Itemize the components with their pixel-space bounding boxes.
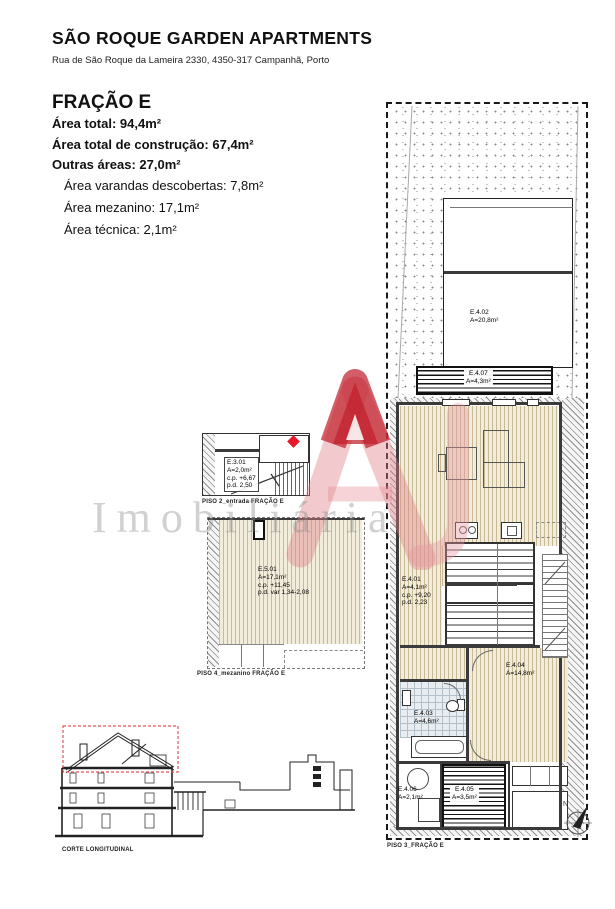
room-cp: c.p. +9,20 <box>402 592 431 600</box>
room-area: A=17,1m² <box>258 574 309 582</box>
bottom-band-wall <box>396 761 510 764</box>
room-label-e404: E.4.04 A=14,8m² <box>506 662 534 678</box>
room-pd: p.d. 2,23 <box>402 599 431 607</box>
balcony-storage-divider <box>508 761 510 828</box>
stair-lower-flight <box>445 602 535 647</box>
caption-entrada: PISO 2_entrada FRAÇÃO E <box>202 499 284 505</box>
north-arrow: N <box>558 794 598 842</box>
unit-wall-bottom <box>396 827 562 830</box>
mezz-skylight <box>253 520 265 540</box>
deck-divider-wall <box>444 271 572 274</box>
room-id: E.4.01 <box>402 576 431 584</box>
address-line: Rua de São Roque da Lameira 2330, 4350-3… <box>52 55 329 66</box>
entrance-wall-hatch <box>203 434 215 495</box>
room-area: A=4,1m² <box>402 584 431 592</box>
room-id: E.5.01 <box>258 566 309 574</box>
stair-landing-edge <box>445 583 517 586</box>
room-label-e401: E.4.01 A=4,1m² c.p. +9,20 p.d. 2,23 <box>402 576 431 607</box>
room-label-e407: E.4.07 A=4,3m² <box>464 370 493 386</box>
window-3 <box>527 399 539 406</box>
sink-bowl-1 <box>459 526 467 534</box>
chair-outline <box>438 454 446 472</box>
unit-wall-left <box>396 402 399 830</box>
tech-balcony-divider <box>440 764 442 828</box>
room-id: E.3.01 <box>227 459 256 467</box>
mezz-void-div2 <box>263 644 264 667</box>
unit-footprint <box>396 402 562 830</box>
room-cp: c.p. +11,45 <box>258 582 309 590</box>
stair-landing <box>445 585 535 602</box>
north-letter: N <box>563 801 568 808</box>
room-id: E.4.07 <box>466 370 491 378</box>
window-1 <box>442 399 470 406</box>
other-areas-line: Outras áreas: 27,0m² <box>52 157 181 172</box>
tech-equipment-box <box>418 798 440 822</box>
deck-inner-line <box>450 207 573 208</box>
room-id: E.4.06 <box>398 786 423 794</box>
room-area: A=3,5m² <box>452 794 477 802</box>
bathtub-inner <box>415 740 464 754</box>
room-area: A=4,6m² <box>414 718 439 726</box>
sink-bowl-2 <box>468 526 476 534</box>
room-label-e402: E.4.02 A=20,8m² <box>470 309 498 325</box>
storage-divider-2 <box>549 766 550 786</box>
room-area: A=14,8m² <box>506 670 534 678</box>
room-cp: c.p. +6,67 <box>227 475 256 483</box>
mezzanine-area-line: Área mezanino: 17,1m² <box>64 200 199 215</box>
room-pd: p.d. 2,50 <box>227 482 256 490</box>
room-label-e406: E.4.06 A=2,1m² <box>398 786 423 802</box>
room-area: A=2,1m² <box>398 794 423 802</box>
room-area: A=2,0m² <box>227 467 256 475</box>
stair-upper-flight <box>445 542 535 585</box>
room-area: A=4,3m² <box>466 378 491 386</box>
room-label-e405: E.4.05 A=3,5m² <box>450 786 479 802</box>
table-outline <box>446 447 477 480</box>
area-total-line: Área total: 94,4m² <box>52 116 161 131</box>
room-id: E.4.03 <box>414 710 439 718</box>
caption-mezanino: PISO 4_mezanino FRAÇÃO E <box>197 671 285 677</box>
living-room-floor <box>400 406 558 546</box>
balconies-area-line: Área varandas descobertas: 7,8m² <box>64 178 263 193</box>
mezz-wall-top <box>208 518 364 520</box>
room-area: A=20,8m² <box>470 317 498 325</box>
caption-piso3: PISO 3_FRAÇÃO E <box>387 843 444 849</box>
mezz-wall-hatch <box>208 518 219 667</box>
room-id: E.4.02 <box>470 309 498 317</box>
stove-burner <box>507 526 517 536</box>
washbasin <box>402 690 411 706</box>
window-2 <box>492 399 516 406</box>
corridor-wall <box>400 645 540 648</box>
mezz-step-notch <box>284 650 363 668</box>
corridor-floor <box>400 648 468 682</box>
room-id: E.4.05 <box>452 786 477 794</box>
property-sheet-page: SÃO ROQUE GARDEN APARTMENTS Rua de São R… <box>0 0 615 909</box>
sofa-chaise-outline <box>483 462 525 488</box>
technical-area-line: Área técnica: 2,1m² <box>64 222 177 237</box>
area-construction-line: Área total de construção: 67,4m² <box>52 137 254 152</box>
room-label-e501: E.5.01 A=17,1m² c.p. +11,45 p.d. var 1,3… <box>258 566 309 597</box>
caption-corte: CORTE LONGITUDINAL <box>62 847 134 853</box>
storage-divider-1 <box>530 766 531 786</box>
page-title: SÃO ROQUE GARDEN APARTMENTS <box>52 28 372 49</box>
mezz-void-div1 <box>241 644 242 667</box>
mezz-void-area <box>219 644 284 668</box>
bedroom-wall-left <box>466 648 469 762</box>
longitudinal-section <box>50 722 365 852</box>
main-floor-plan: E.4.07 A=4,3m² <box>386 102 588 840</box>
stair-divider-line <box>497 544 498 645</box>
room-label-e403: E.4.03 A=4,6m² <box>414 710 439 726</box>
room-pd: p.d. var 1,34-2,08 <box>258 589 309 597</box>
roof-deck <box>443 198 573 368</box>
room-label-e301: E.3.01 A=2,0m² c.p. +6,67 p.d. 2,50 <box>224 457 259 492</box>
toilet-bowl <box>446 700 459 712</box>
fraction-title: FRAÇÃO E <box>52 92 151 114</box>
bathroom-wall-top <box>400 679 468 682</box>
common-stair-arrows <box>542 554 568 658</box>
room-id: E.4.04 <box>506 662 534 670</box>
